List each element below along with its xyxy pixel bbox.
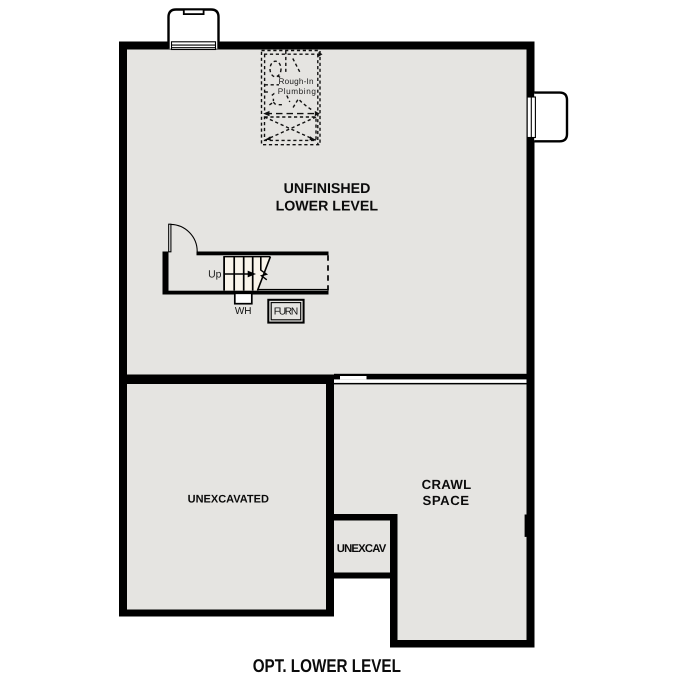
svg-text:Up: Up xyxy=(208,269,222,281)
svg-text:Plumbing: Plumbing xyxy=(278,87,317,96)
svg-text:LOWER LEVEL: LOWER LEVEL xyxy=(276,198,379,214)
svg-text:UNFINISHED: UNFINISHED xyxy=(284,181,371,197)
svg-text:WH: WH xyxy=(235,306,252,317)
svg-text:CRAWL: CRAWL xyxy=(422,477,472,492)
svg-text:UNEXCAVATED: UNEXCAVATED xyxy=(188,494,269,506)
svg-text:OPT. LOWER LEVEL: OPT. LOWER LEVEL xyxy=(253,655,401,676)
svg-text:FURN: FURN xyxy=(274,306,299,317)
svg-text:UNEXCAV: UNEXCAV xyxy=(337,543,387,555)
svg-text:Rough-In: Rough-In xyxy=(279,77,314,86)
svg-text:SPACE: SPACE xyxy=(423,493,470,508)
